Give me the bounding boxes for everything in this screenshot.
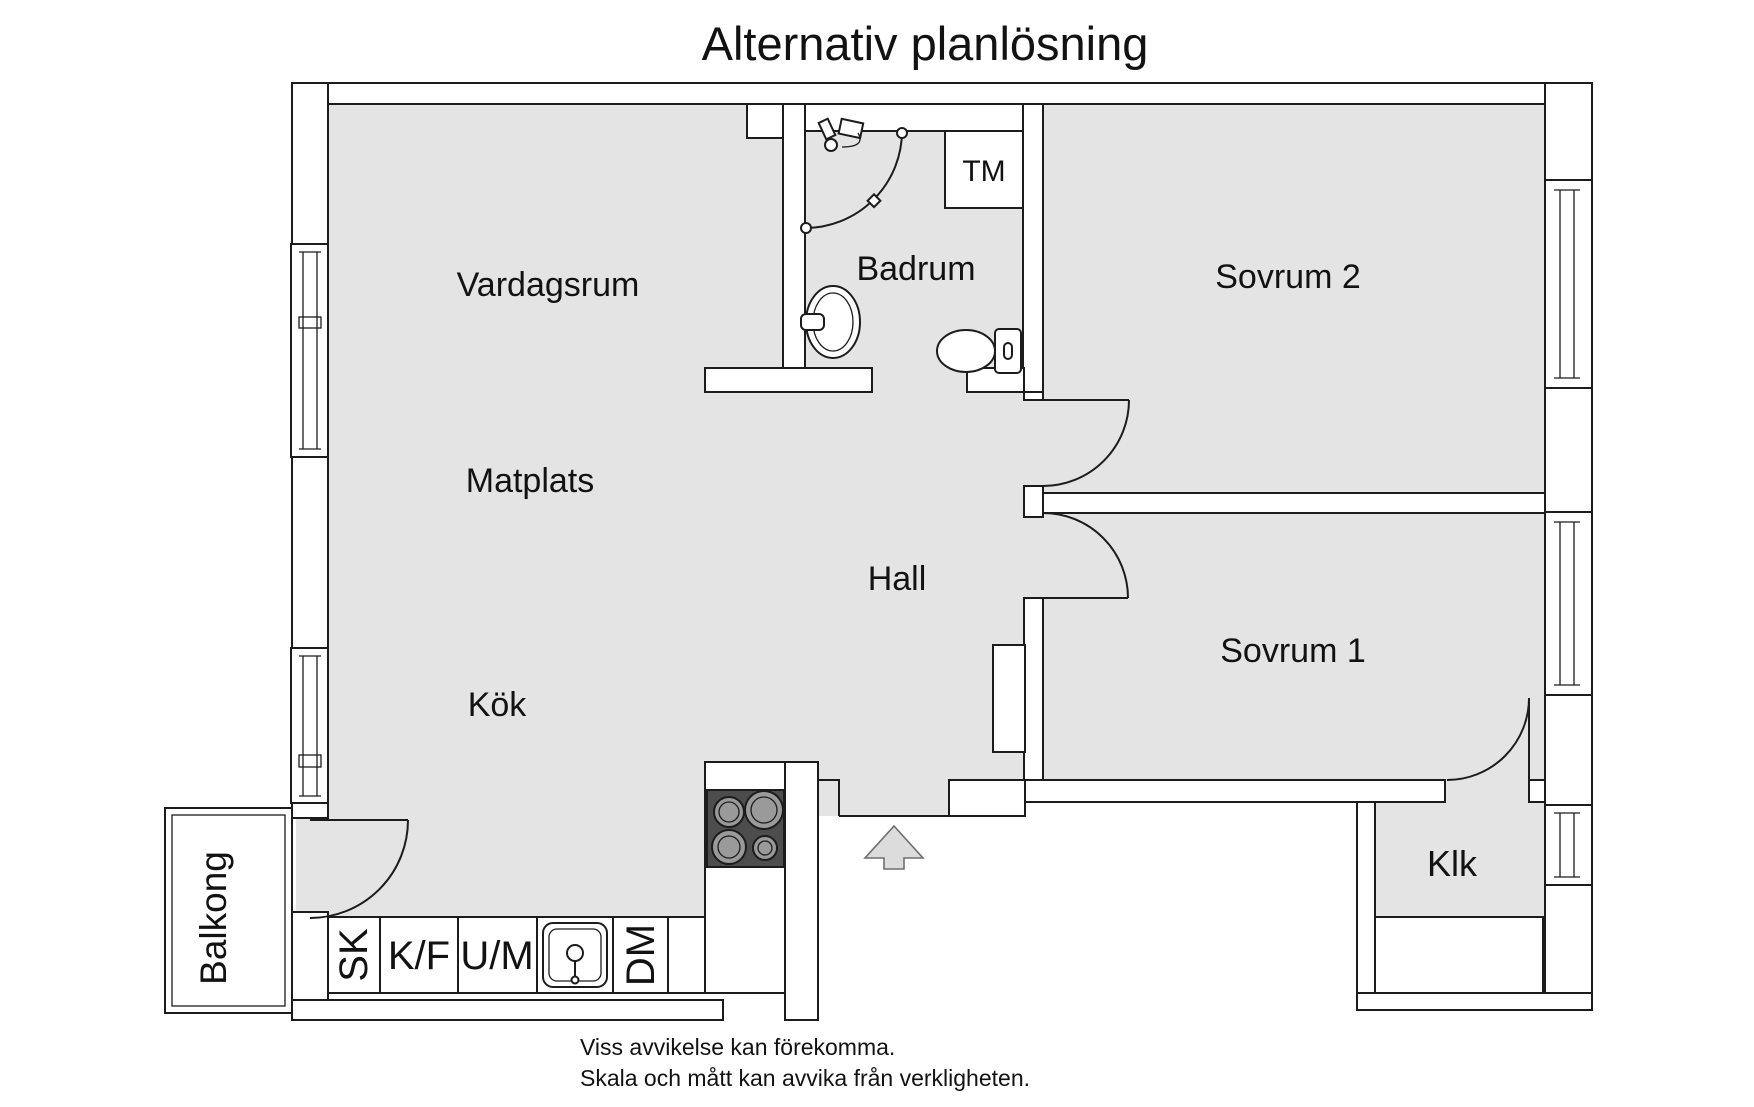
floor-doorway-bedroom1: [1024, 517, 1043, 598]
label-living: Vardagsrum: [457, 266, 640, 304]
floor-plan-svg: Balkong SK K/F U/M DM: [0, 0, 1754, 1107]
wall-notch-shaft: [747, 104, 783, 138]
wall-bathroom-bedroom2: [1023, 104, 1043, 392]
floor-hall: [783, 392, 1025, 816]
label-bedroom2: Sovrum 2: [1215, 258, 1361, 296]
wall-left-lower: [292, 912, 328, 1008]
cabinet-kf-label: K/F: [388, 934, 450, 978]
footer-line1: Viss avvikelse kan förekomma.: [580, 1034, 895, 1060]
wall-closet-hinge: [1529, 780, 1545, 802]
footer-line2: Skala och mått kan avvika från verklighe…: [580, 1065, 1030, 1091]
cabinet-dm-label: DM: [619, 924, 663, 986]
entry-arrow-icon: [865, 826, 923, 869]
floor-doorway-bedroom2: [1024, 400, 1043, 486]
floor-doorway-closet: [1445, 780, 1529, 802]
window-closet: [1545, 805, 1592, 885]
label-kitchen: Kök: [468, 686, 528, 724]
kitchen-counter: SK K/F U/M DM: [328, 917, 705, 993]
counter-end-cell: [668, 917, 705, 993]
floor-bathroom-doorway: [872, 368, 967, 392]
label-hall: Hall: [868, 560, 927, 598]
wall-door-stub: [1024, 486, 1043, 517]
floor-balcony-doorway: [296, 818, 328, 912]
hall-shaft-niche: [993, 645, 1025, 752]
wall-bedroom-divider: [1043, 493, 1545, 513]
washing-machine-label: TM: [962, 155, 1005, 188]
window-bedroom2: [1545, 180, 1592, 388]
cabinet-sk-label: SK: [332, 928, 376, 982]
wall-closet-left: [1357, 802, 1375, 993]
toilet-icon: [937, 329, 1021, 373]
page-title: Alternativ planlösning: [702, 17, 1149, 70]
wall-bathroom-bottom-a: [705, 368, 872, 392]
label-closet: Klk: [1427, 843, 1478, 884]
window-bedroom1: [1545, 512, 1592, 695]
wall-door-stub-top: [1024, 392, 1043, 400]
wall-bottom-right: [1357, 993, 1592, 1010]
wall-bottom-left: [292, 1000, 723, 1020]
label-bathroom: Badrum: [856, 250, 975, 288]
wall-entry-junction: [949, 780, 1025, 816]
label-dining: Matplats: [466, 462, 595, 500]
balcony: Balkong: [165, 808, 292, 1013]
wall-top: [292, 83, 1592, 104]
label-bedroom1: Sovrum 1: [1220, 632, 1366, 670]
wall-bedroom1-bottom: [1025, 780, 1445, 802]
window-kitchen: [291, 648, 328, 803]
window-living: [291, 244, 328, 457]
stove-icon: [707, 790, 784, 867]
wall-hall-bedrooms-lower: [1024, 598, 1043, 780]
floor-bedroom2: [1043, 104, 1545, 493]
cabinet-um-label: U/M: [460, 934, 533, 978]
floor-plan-page: Balkong SK K/F U/M DM: [0, 0, 1754, 1107]
balcony-label: Balkong: [193, 851, 234, 985]
wall-entry-side: [785, 762, 818, 1020]
closet-white-box: [1375, 917, 1543, 993]
kitchen-sink-icon: [543, 923, 607, 987]
